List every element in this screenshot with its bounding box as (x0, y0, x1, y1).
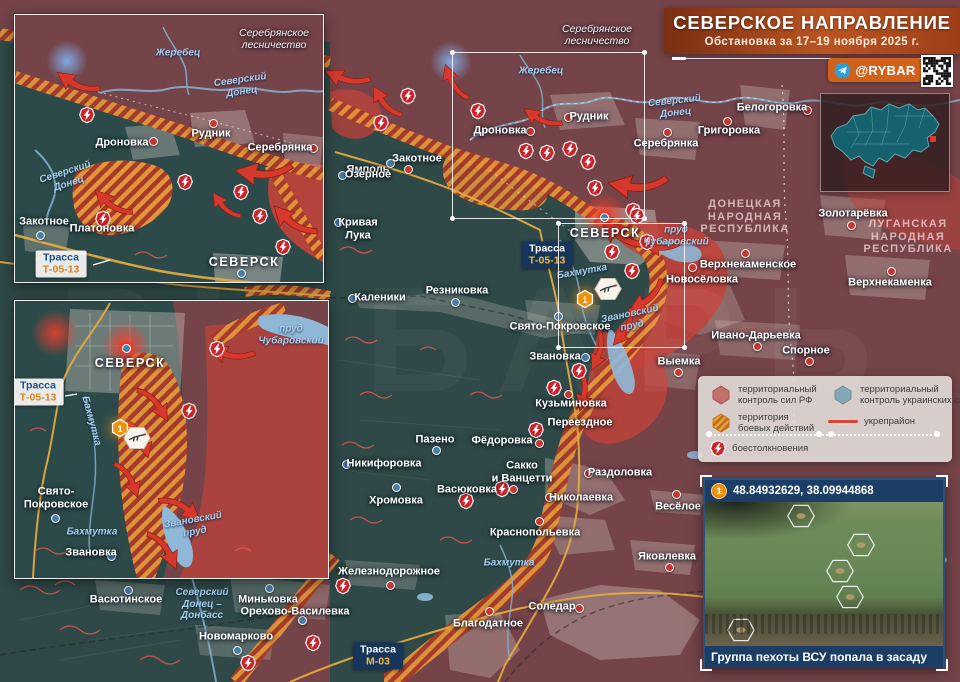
forest-label: Серебрянское лесничество (239, 27, 309, 51)
city-dot (237, 269, 246, 278)
target-hexagon (835, 584, 865, 610)
corner-bracket (936, 475, 948, 487)
city-dot (149, 137, 158, 146)
target-hexagon (846, 532, 876, 558)
map-root: РЫБАРЬ 1ЯмпольРудникДроновкаСеребрянкаБе… (0, 0, 960, 682)
legend-label: территориальный контроль сил РФ (738, 384, 817, 407)
city-dot (122, 344, 131, 353)
legend-item: укрепрайон (828, 416, 915, 427)
legend-divider (710, 434, 940, 436)
clash-legend-icon (710, 440, 726, 457)
hex-rf-legend-icon (710, 385, 732, 405)
inset-dronovka-platonovka: Серебрянское лесничествоЖеребецСеверский… (14, 14, 324, 283)
title-banner: СЕВЕРСКОЕ НАПРАВЛЕНИЕ Обстановка за 17–1… (664, 8, 960, 54)
ukraine-minimap (820, 93, 950, 192)
clash-icon (177, 174, 193, 191)
place-label: Звановка (65, 547, 116, 560)
corner-bracket (936, 659, 948, 671)
place-label: Платоновка (70, 223, 135, 236)
city-dot (209, 119, 218, 128)
photo-coordinates: 48.84932629, 38.09944868 (733, 485, 874, 497)
map-legend: территориальный контроль сил РФтерритори… (698, 376, 952, 462)
legend-item: территория боевых действий (710, 412, 814, 435)
place-label: Закотное (19, 216, 69, 229)
place-label: Дроновка (95, 137, 148, 150)
legend-divider-dot (816, 431, 822, 437)
city-dot (36, 231, 45, 240)
clash-icon (233, 184, 249, 201)
water-label: Бахмутка (67, 526, 118, 538)
legend-label: боестолкновения (732, 443, 808, 454)
photo-caption-bar: Группа пехоты ВСУ попала в засаду (705, 646, 943, 668)
clash-icon (252, 208, 268, 225)
hex-ua-legend-icon (832, 385, 854, 405)
road-label: ТрассаТ-05-13 (36, 250, 87, 277)
rybar-handle: @RYBAR (855, 63, 915, 78)
legend-divider-dot (934, 431, 940, 437)
legend-divider-dot (706, 431, 712, 437)
road-label: ТрассаТ-05-13 (14, 378, 63, 405)
legend-item: территориальный контроль украинских сил (832, 384, 960, 407)
photo-marker-badge: 1 (711, 483, 727, 499)
clash-icon (79, 107, 95, 124)
legend-label: территориальный контроль украинских сил (860, 384, 960, 407)
legend-item: территориальный контроль сил РФ (710, 384, 817, 407)
water-label: Жеребец (156, 47, 201, 59)
strike-glow (31, 309, 79, 357)
place-label: Свято- Покровское (24, 485, 88, 510)
corner-bracket (700, 659, 712, 671)
place-label: Серебрянка (248, 142, 313, 155)
corner-bracket (700, 475, 712, 487)
ambush-icon (122, 426, 152, 451)
inset-seversk: 1СЕВЕРСКпруд ЧубаровскийБахмуткаСвято- П… (14, 300, 329, 579)
photo-image (705, 502, 943, 646)
place-label: Рудник (191, 128, 230, 141)
qr-code (921, 55, 953, 87)
clash-icon (275, 239, 291, 256)
legend-label: территория боевых действий (738, 412, 814, 435)
rybar-badge: @RYBAR (828, 58, 922, 82)
place-label: СЕВЕРСК (209, 255, 280, 269)
photo-panel: 1 48.84932629, 38.09944868 Группа пехоты… (703, 478, 945, 668)
target-hexagon (726, 617, 756, 643)
target-hexagon (825, 558, 855, 584)
photo-caption: Группа пехоты ВСУ попала в засаду (711, 650, 927, 664)
photo-coords-bar: 1 48.84932629, 38.09944868 (705, 480, 943, 502)
water-label: пруд Чубаровский (258, 324, 323, 347)
legend-item: боестолкновения (710, 440, 808, 457)
place-label: СЕВЕРСК (95, 356, 166, 370)
legend-label: укрепрайон (864, 416, 915, 427)
clash-icon (181, 403, 197, 420)
legend-divider-dot (828, 431, 834, 437)
target-hexagon (786, 503, 816, 529)
page-subtitle: Обстановка за 17–19 ноября 2025 г. (664, 36, 960, 48)
page-title: СЕВЕРСКОЕ НАПРАВЛЕНИЕ (664, 12, 960, 34)
telegram-icon (834, 62, 851, 79)
city-dot (51, 514, 60, 523)
clash-icon (209, 341, 225, 358)
hex-combat-legend-icon (710, 413, 732, 433)
line-legend-icon (828, 420, 858, 423)
